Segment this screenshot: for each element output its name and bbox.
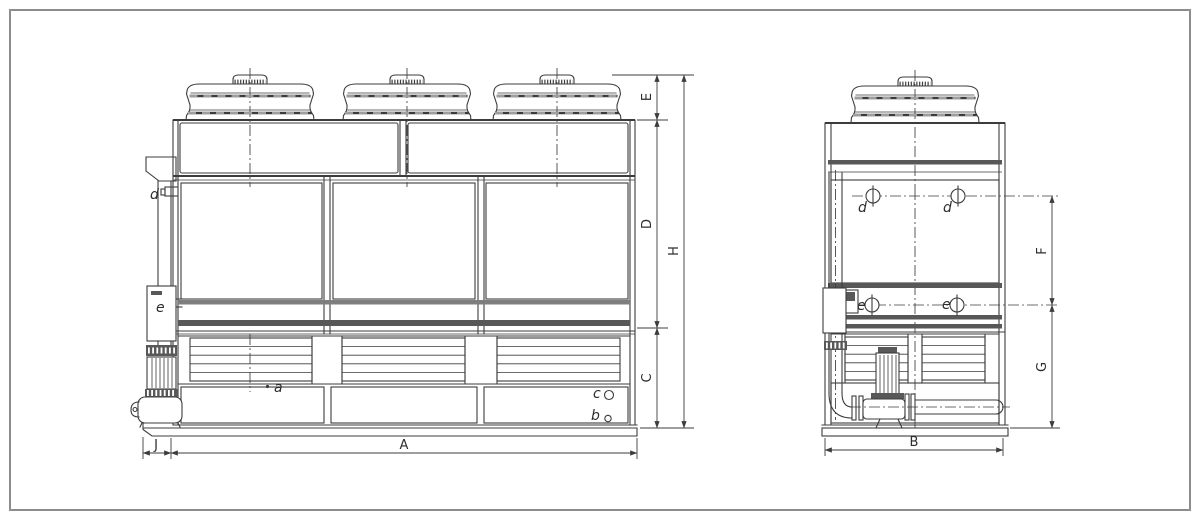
part-label-d-side-1: d	[858, 200, 867, 216]
base-plate	[143, 428, 637, 436]
front-view: a c b d e E D C H J A	[131, 68, 694, 459]
dim-label-J: J	[153, 438, 158, 453]
fan-cowl-3	[493, 68, 621, 187]
side-view: d d e e	[822, 70, 1060, 456]
dim-label-D: D	[640, 219, 655, 229]
nozzles-e: e e	[843, 290, 1058, 315]
part-label-c: c	[593, 386, 601, 402]
fan-cowl-1	[186, 68, 314, 187]
casing-panels	[181, 176, 628, 334]
part-label-a: a	[274, 380, 283, 396]
dim-label-G: G	[1035, 362, 1050, 372]
dim-label-C: C	[640, 373, 655, 382]
pump-motor-front	[147, 357, 176, 389]
drain-hole-b	[605, 415, 611, 421]
part-label-e-front: e	[156, 300, 165, 316]
dim-label-B: B	[910, 435, 919, 450]
dim-label-E: E	[640, 93, 655, 101]
nozzle-d-front	[161, 187, 177, 196]
plenum-panels	[180, 120, 628, 176]
part-label-e-side-2: e	[942, 297, 951, 313]
drain-hole-c	[605, 391, 614, 400]
fan-cowl-2	[343, 68, 471, 187]
drawing-sheet: a c b d e E D C H J A	[0, 0, 1200, 520]
dimensions-front: E D C H J A	[143, 75, 694, 459]
dim-label-A: A	[400, 438, 409, 453]
spray-pump-side	[850, 347, 1010, 428]
part-label-d-front: d	[150, 187, 159, 203]
cooling-tower-dimension-drawing: a c b d e E D C H J A	[0, 0, 1200, 520]
louver-section	[178, 334, 630, 392]
part-label-b: b	[591, 408, 600, 424]
spray-nozzles-d: d d	[852, 186, 1058, 216]
louver-panel-3	[497, 338, 620, 381]
louver-panel-2	[342, 338, 465, 381]
dim-label-H: H	[667, 246, 682, 256]
pump-volute-front	[131, 397, 182, 427]
part-label-d-side-2: d	[943, 200, 952, 216]
fan-cowl-side	[851, 70, 979, 189]
dim-label-F: F	[1035, 247, 1050, 254]
louver-panel-1	[190, 338, 312, 381]
spray-point-marker	[266, 385, 269, 388]
water-basin	[173, 387, 637, 425]
inlet-hopper	[146, 157, 176, 181]
